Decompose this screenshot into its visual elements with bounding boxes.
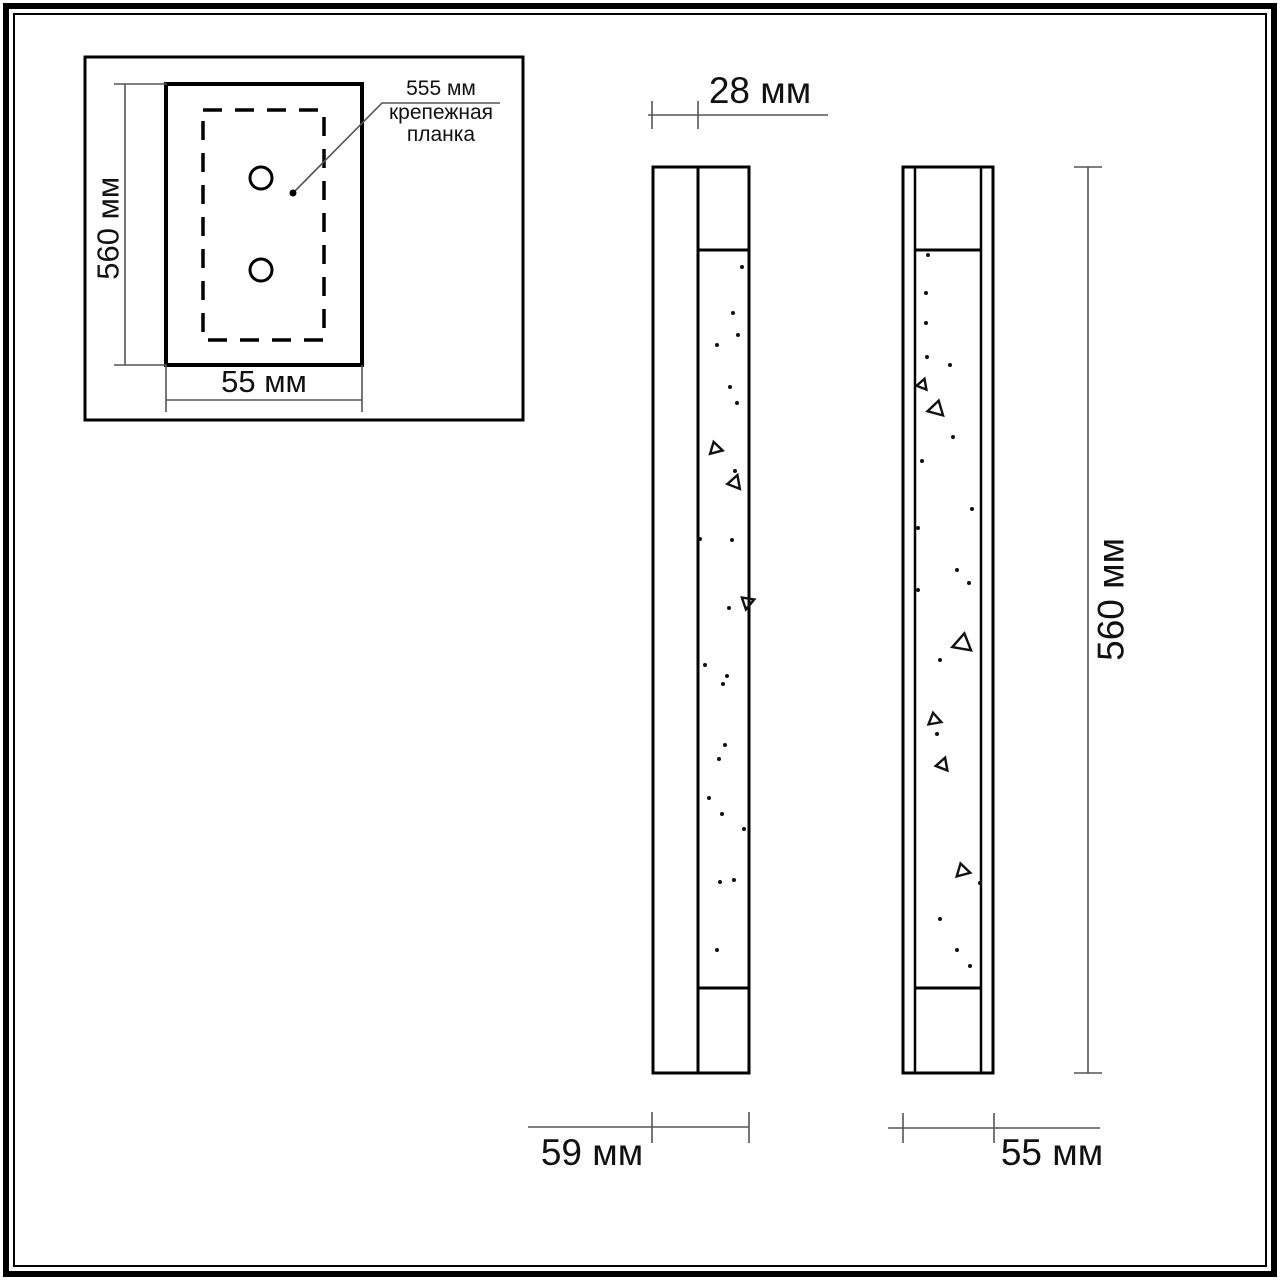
sparkle-triangle [726,475,740,491]
sparkle-dot [728,385,732,389]
sparkle-dot [938,658,942,662]
sparkle-triangle [707,440,722,454]
sparkle-triangle [916,379,927,391]
front-width-label: 55 мм [972,1134,1132,1173]
sparkle-dot [951,435,955,439]
sparkle-dot [948,363,952,367]
sparkle-dot [707,796,711,800]
inset-width-label: 55 мм [184,366,344,399]
sparkle-dot [916,526,920,530]
sparkle-dot [727,606,731,610]
sparkle-dot [955,948,959,952]
side-view [528,101,828,1143]
leader-dot [290,190,297,197]
sparkle-dot [967,581,971,585]
sparkle-dot [730,538,734,542]
sparkle-dot [735,401,739,405]
inset-height-label: 560 мм [93,148,126,308]
front-view [888,167,1102,1143]
sparkle-dot [924,321,928,325]
sparkle-triangle [738,593,755,610]
front-height-label: 560 мм [1093,519,1132,679]
sparkle-dot [916,588,920,592]
sparkle-dot [740,265,744,269]
drawing-linework [0,0,1280,1280]
sparkle-dot [703,663,707,667]
sparkle-dot [955,568,959,572]
sparkle-dot [723,743,727,747]
sparkle-dot [720,812,724,816]
sparkle-dot [718,880,722,884]
sparkle-dot [725,674,729,678]
plate-length-label: 555 мм [361,78,521,100]
sparkle-dot [938,917,942,921]
sparkle-dot [721,682,725,686]
sparkle-decorations [698,253,982,968]
sparkle-dot [698,537,702,541]
sparkle-dot [926,253,930,257]
sparkle-dot [925,355,929,359]
sparkle-dot [742,827,746,831]
side-view-outline [653,167,749,1073]
sparkle-triangle [928,399,947,416]
sparkle-dot [731,311,735,315]
sparkle-dot [978,881,982,885]
plate-outline [166,84,362,365]
sparkle-triangle [952,632,973,651]
sparkle-dot [920,459,924,463]
sparkle-dot [935,732,939,736]
side-width-label: 59 мм [512,1134,672,1173]
sparkle-triangle [935,758,948,773]
sparkle-dot [717,757,721,761]
sparkle-triangle [927,712,942,725]
sparkle-dot [968,964,972,968]
sparkle-dot [733,469,737,473]
plate-caption-label: крепежная планка [361,102,521,146]
mounting-hole-top [250,167,272,189]
technical-drawing-canvas: 560 мм 55 мм 555 мм крепежная планка 28 … [0,0,1280,1280]
sparkle-dot [732,878,736,882]
mounting-hole-bottom [250,259,272,281]
plate-dashed-outline [203,110,324,340]
sparkle-dot [970,507,974,511]
front-view-outline [903,167,993,1073]
side-depth-label: 28 мм [680,72,840,111]
sparkle-triangle [954,862,970,877]
sparkle-dot [924,291,928,295]
sparkle-dot [736,333,740,337]
sparkle-dot [715,343,719,347]
sparkle-dot [715,948,719,952]
